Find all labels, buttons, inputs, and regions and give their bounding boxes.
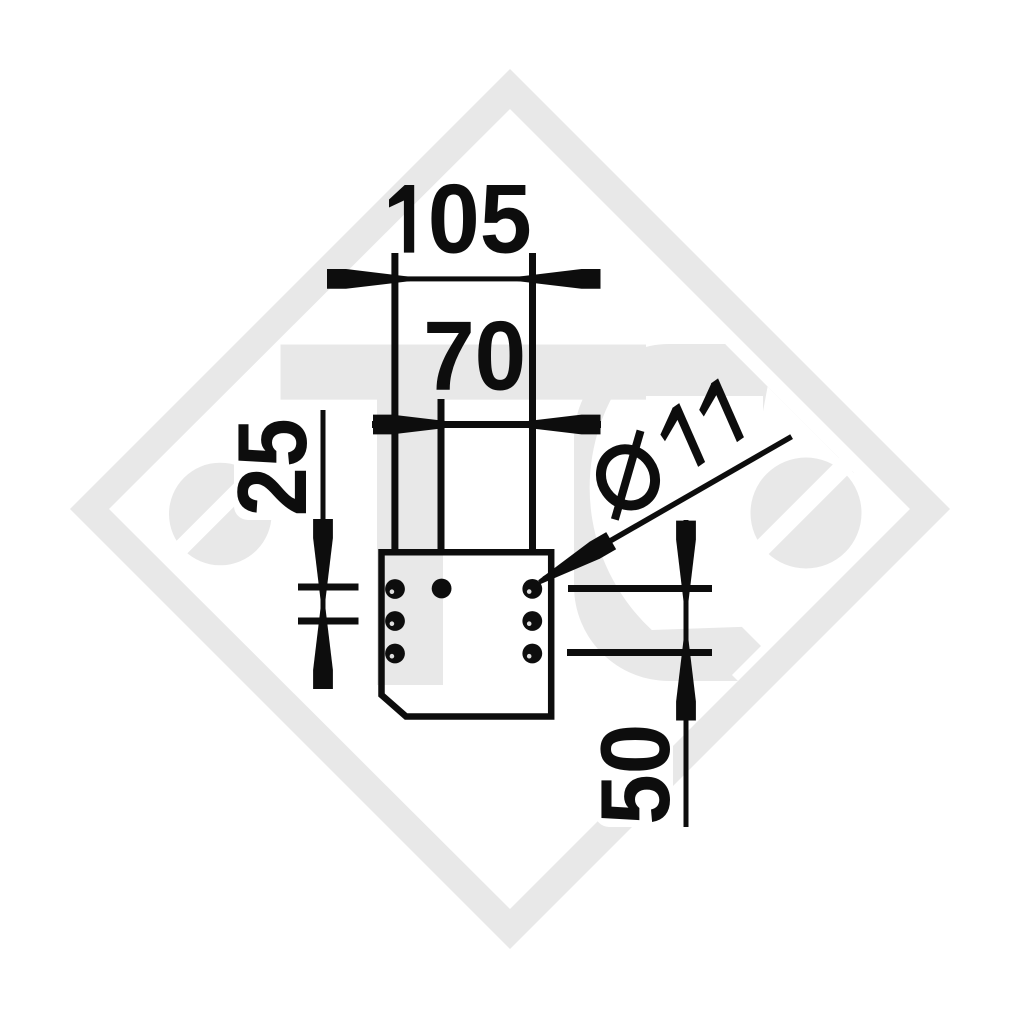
svg-text:05: 05: [428, 164, 532, 274]
svg-text:25: 25: [217, 418, 327, 516]
svg-text:50: 50: [580, 724, 690, 825]
svg-text:70: 70: [423, 301, 526, 411]
